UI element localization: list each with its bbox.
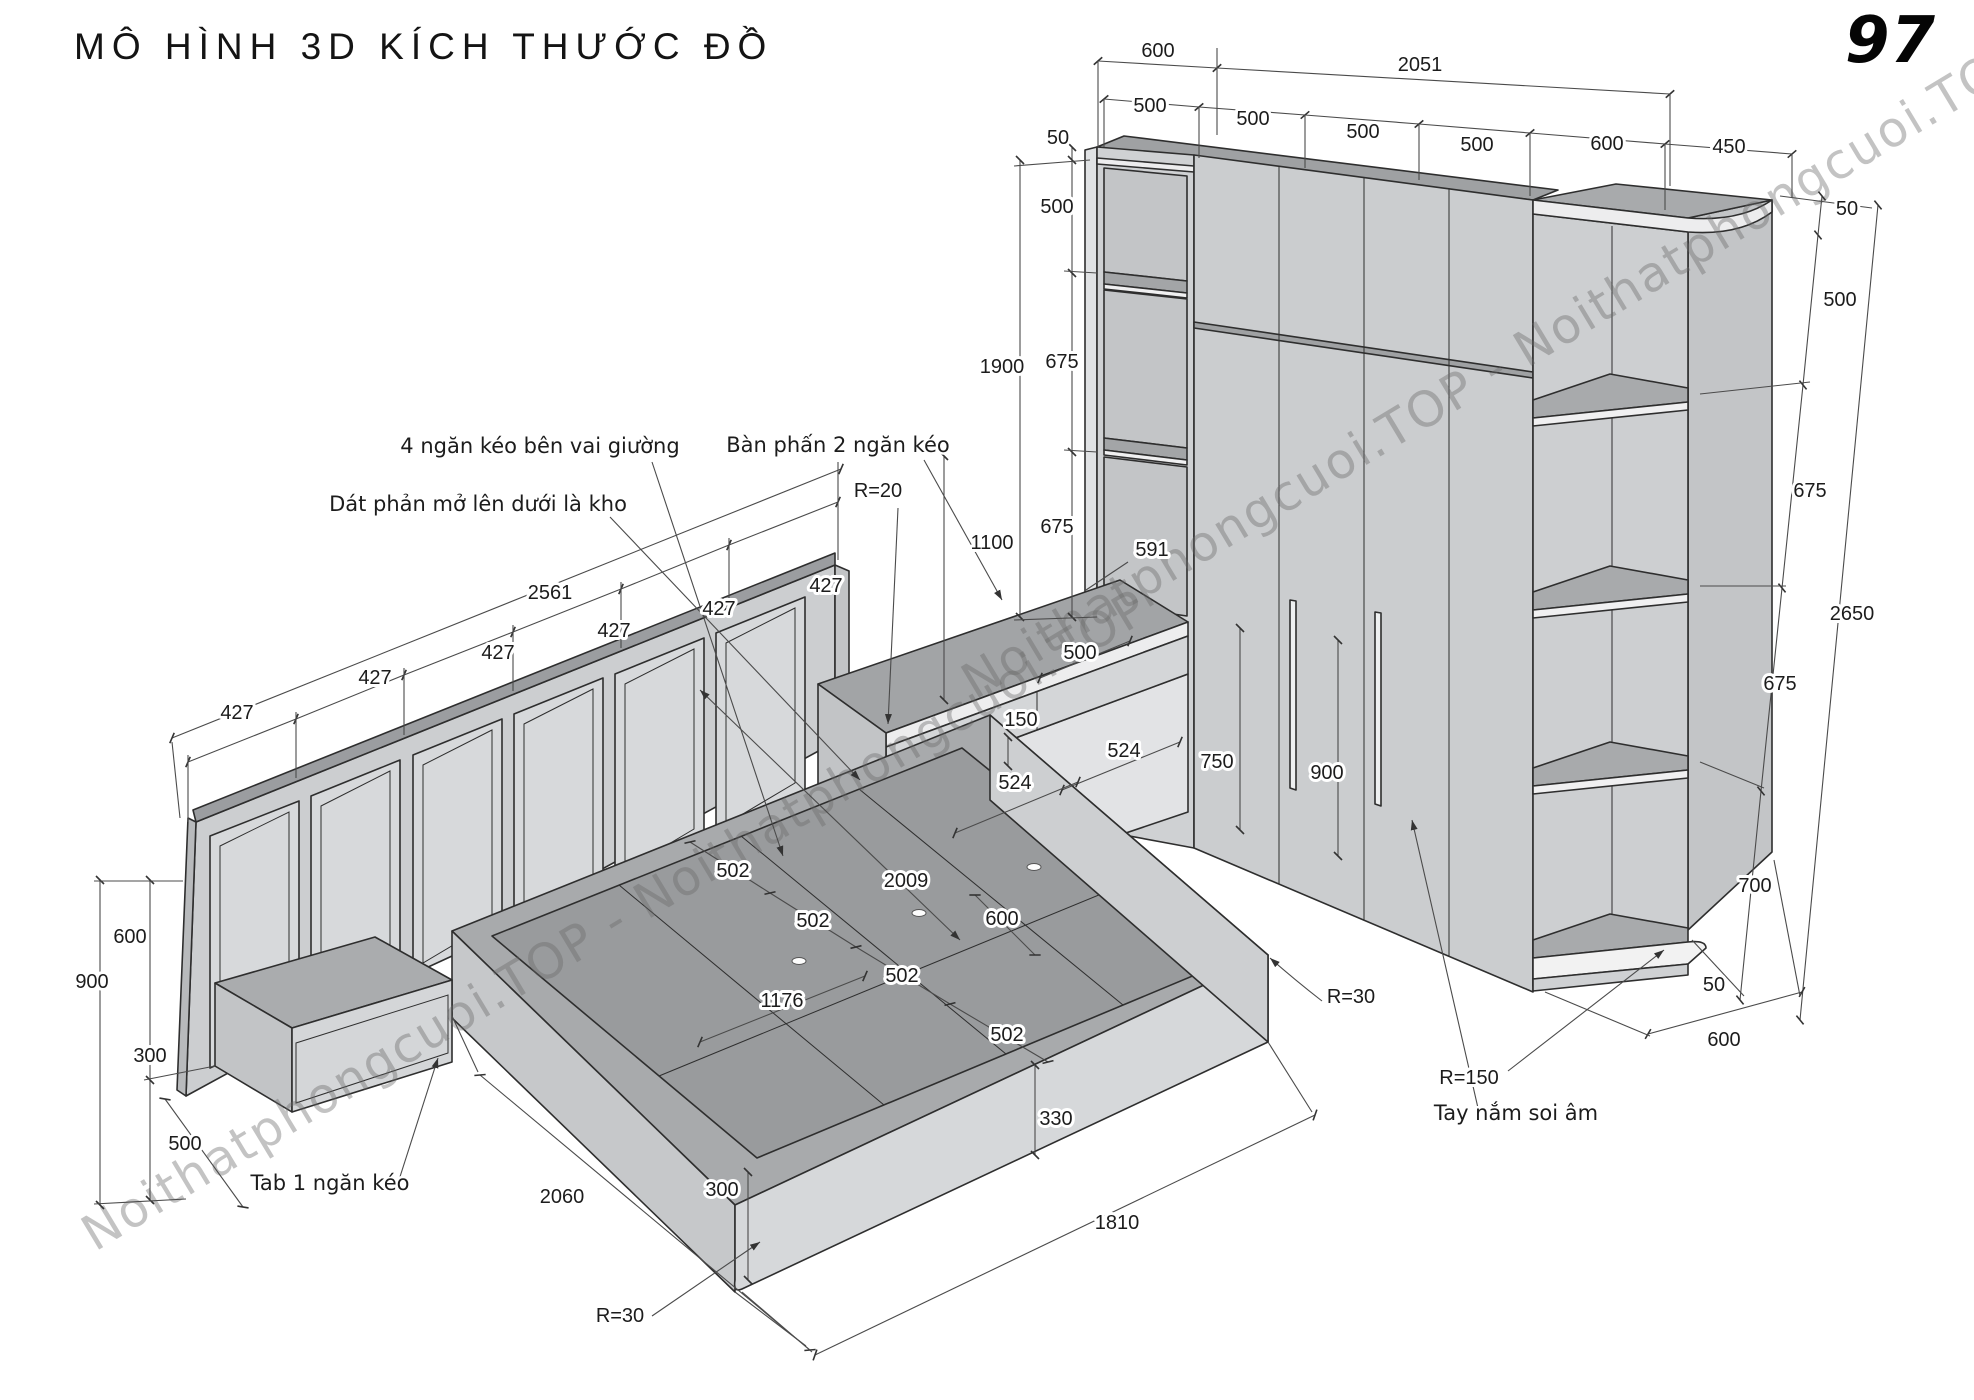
dimension-label: 600 [113, 926, 146, 948]
callout-label: Tay nắm soi âm [1433, 1101, 1598, 1125]
dimension-label: 2051 [1398, 54, 1443, 76]
dimension-label: 502 [885, 965, 918, 987]
dimension-label: 427 [597, 620, 630, 642]
dimension-label: 2060 [540, 1186, 585, 1208]
dimension-label: 427 [358, 667, 391, 689]
bolt-hole [792, 958, 806, 965]
dimension-label: 427 [809, 575, 842, 597]
dimension-label: 500 [1236, 108, 1269, 130]
dimension-label: 900 [75, 971, 108, 993]
dimension-label: 675 [1763, 673, 1796, 695]
dimension-label: 500 [1133, 95, 1166, 117]
callout-label: Dát phản mở lên dưới là kho [329, 492, 627, 516]
dimension-label: 524 [1107, 740, 1140, 762]
dimension-label: 502 [716, 860, 749, 882]
dimension-label: 50 [1703, 974, 1725, 996]
dimension-label: 50 [1047, 127, 1069, 149]
dimension-label: 502 [990, 1024, 1023, 1046]
dimension-label: 600 [1590, 133, 1623, 155]
dimension-label: 502 [796, 910, 829, 932]
dimension-label: 300 [133, 1045, 166, 1067]
dimension-label: 500 [1040, 196, 1073, 218]
dimension-label: 500 [168, 1133, 201, 1155]
bolt-hole [912, 910, 926, 917]
callout-label: Tab 1 ngăn kéo [250, 1171, 410, 1195]
dimension-label: 150 [1004, 709, 1037, 731]
dimension-label: 2650 [1830, 603, 1875, 625]
dimension-label: 427 [481, 642, 514, 664]
dimension-label: 750 [1200, 751, 1233, 773]
bolt-hole [1027, 864, 1041, 871]
dimension-label: 675 [1040, 516, 1073, 538]
dimension-label: 500 [1823, 289, 1856, 311]
dimension-label: 50 [1836, 198, 1858, 220]
dimension-label: 500 [1460, 134, 1493, 156]
dimension-label: 500 [1063, 642, 1096, 664]
callout-label: Bàn phấn 2 ngăn kéo [726, 433, 949, 457]
dimension-label: 427 [220, 702, 253, 724]
dimension-label: 675 [1045, 351, 1078, 373]
dimension-label: 600 [985, 908, 1018, 930]
dimension-label: 2561 [528, 582, 573, 604]
wardrobe-doors [1194, 155, 1533, 992]
door-handle-groove [1375, 612, 1381, 806]
drawing-page: MÔ HÌNH 3D KÍCH THƯỚC ĐỒ 97 [0, 0, 1974, 1400]
dimension-label: 1810 [1095, 1212, 1140, 1234]
dimension-label: 600 [1707, 1029, 1740, 1051]
dimension-label: 427 [702, 598, 735, 620]
dimension-label: 700 [1738, 875, 1771, 897]
dimension-label: 600 [1141, 40, 1174, 62]
dimension-label: R=30 [1327, 986, 1375, 1008]
dimension-label: 300 [705, 1179, 738, 1201]
dimension-label: R=30 [596, 1305, 644, 1327]
dimension-label: 591 [1135, 539, 1168, 561]
dimension-label: R=150 [1439, 1067, 1499, 1089]
dimension-label: 524 [998, 772, 1031, 794]
dimension-label: 900 [1310, 762, 1343, 784]
dimension-label: R=20 [854, 480, 902, 502]
dimension-label: 1176 [760, 990, 803, 1012]
technical-drawing: Noithatphongcuoi.TOP - Noithatphongcuoi.… [0, 0, 1974, 1400]
dimension-label: 2009 [884, 870, 929, 892]
dimension-label: 500 [1346, 121, 1379, 143]
dimension-label: 450 [1712, 136, 1745, 158]
dimension-label: 1900 [980, 356, 1025, 378]
callout-label: 4 ngăn kéo bên vai giường [400, 434, 679, 458]
dimension-label: 330 [1039, 1108, 1072, 1130]
dimension-label: 675 [1793, 480, 1826, 502]
door-handle-groove [1290, 600, 1296, 790]
dimension-label: 1100 [970, 532, 1013, 554]
